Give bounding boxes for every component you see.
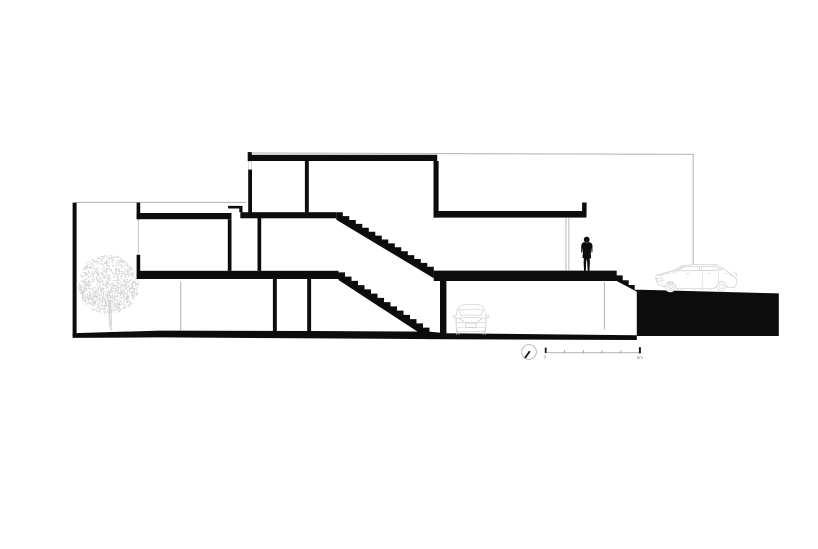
- svg-text:5m: 5m: [637, 355, 643, 360]
- svg-text:0: 0: [544, 354, 547, 359]
